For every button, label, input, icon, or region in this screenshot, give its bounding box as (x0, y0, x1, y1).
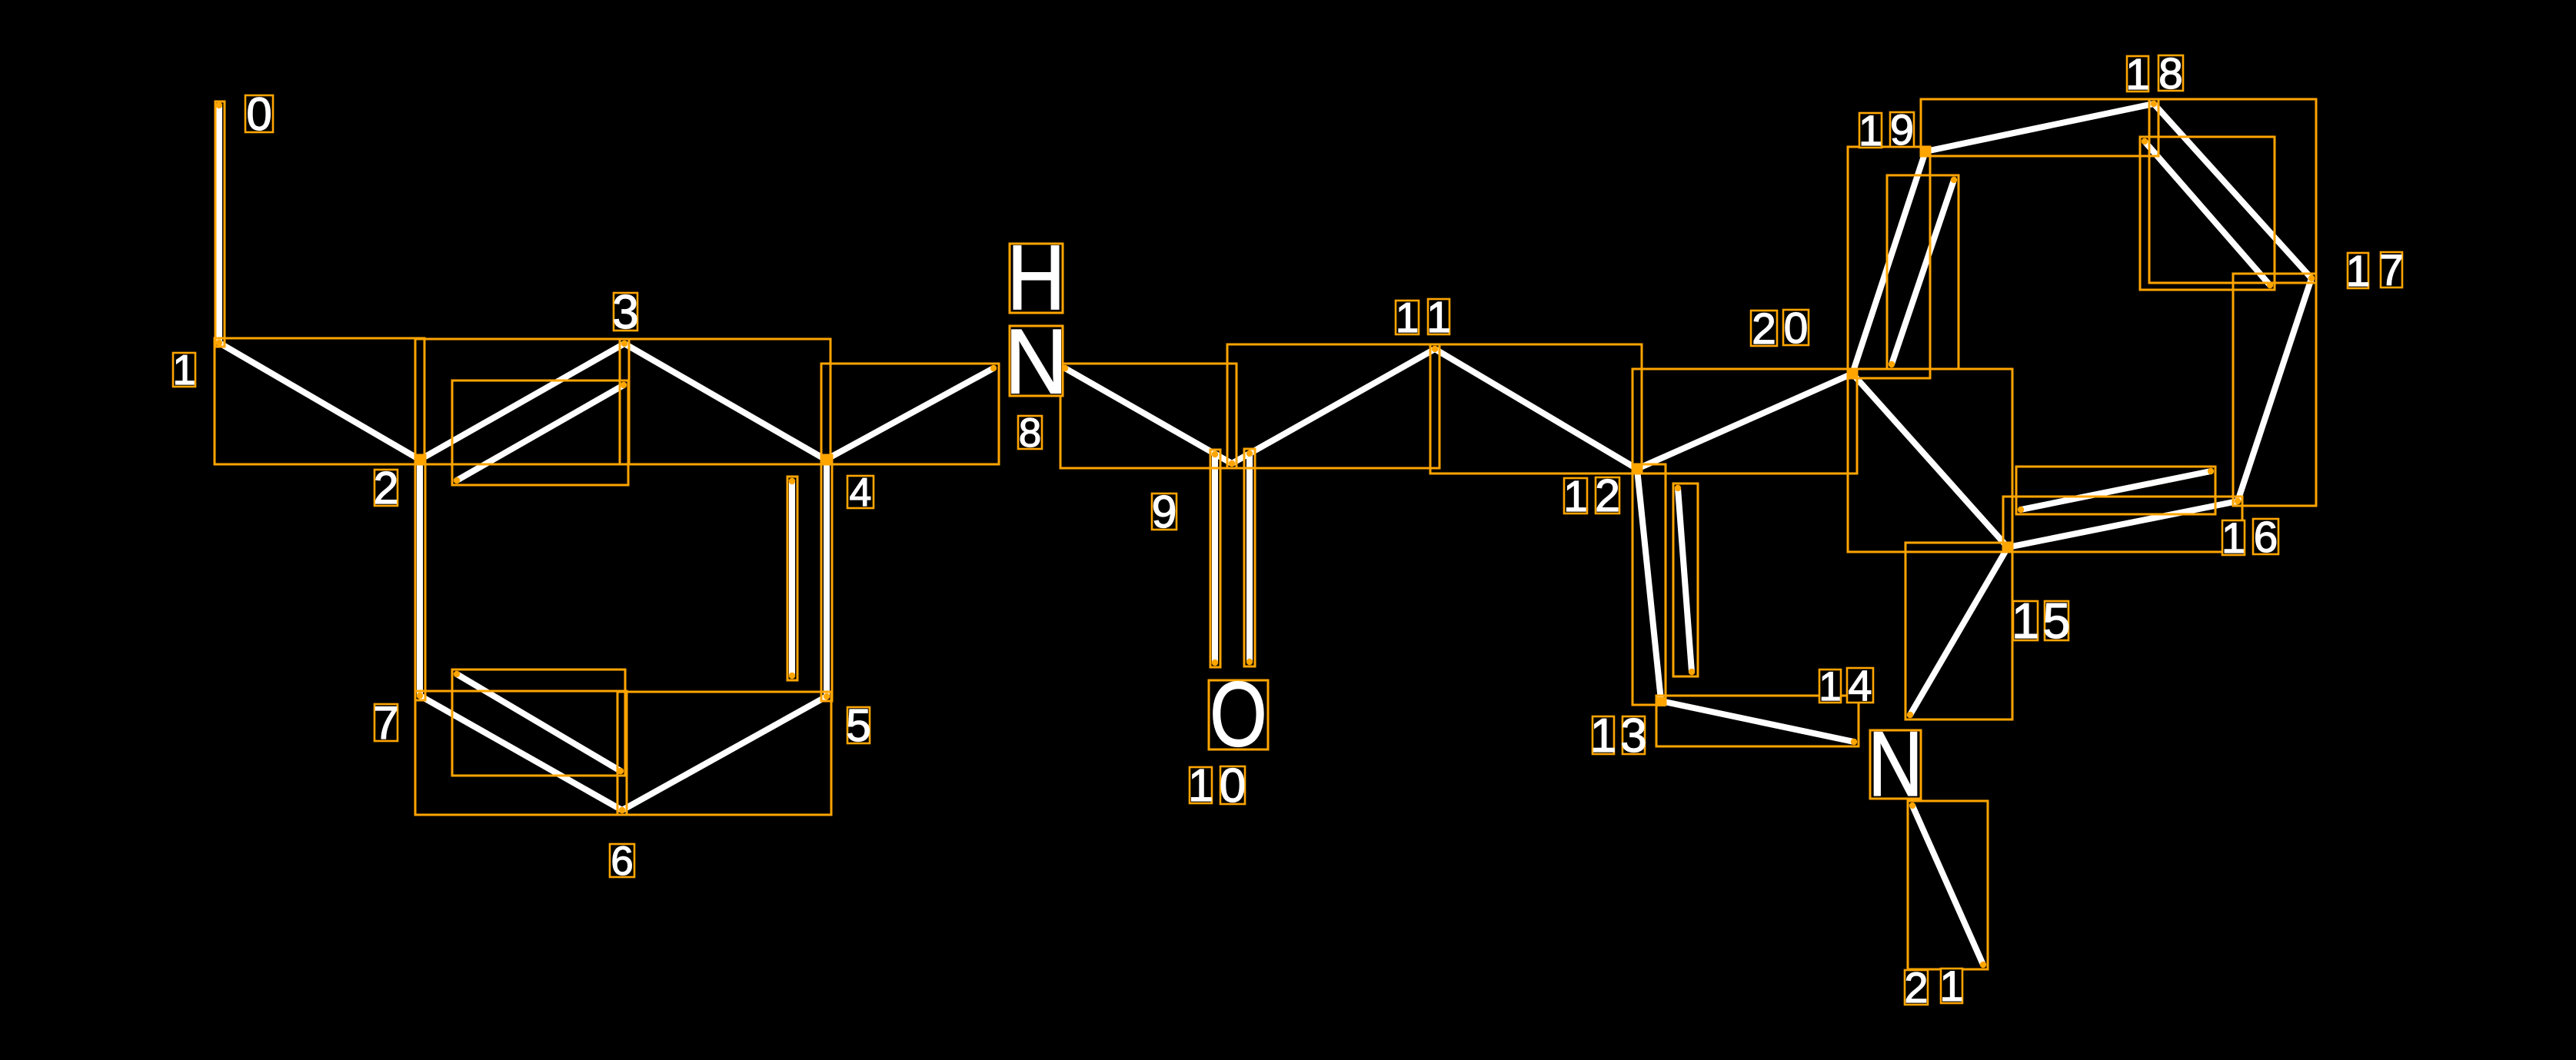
svg-text:1: 1 (1939, 962, 1963, 1010)
svg-text:1: 1 (2346, 247, 2371, 296)
svg-text:N: N (1004, 310, 1067, 413)
svg-text:2: 2 (1904, 963, 1928, 1012)
svg-text:1: 1 (1819, 664, 1841, 709)
svg-text:0: 0 (1220, 759, 1246, 812)
svg-text:2: 2 (1752, 304, 1776, 354)
svg-text:7: 7 (2379, 246, 2404, 295)
svg-text:1: 1 (1590, 709, 1616, 763)
svg-text:5: 5 (2042, 593, 2070, 649)
svg-text:8: 8 (1019, 410, 1041, 456)
svg-text:1: 1 (172, 346, 196, 394)
svg-text:O: O (1210, 663, 1267, 766)
svg-text:3: 3 (612, 286, 638, 339)
svg-text:2: 2 (1595, 470, 1620, 521)
svg-text:N: N (1868, 713, 1923, 816)
svg-text:1: 1 (1859, 106, 1882, 155)
svg-text:4: 4 (1848, 661, 1872, 709)
svg-text:9: 9 (1152, 487, 1177, 537)
svg-text:9: 9 (1890, 105, 1914, 154)
svg-text:6: 6 (2254, 513, 2278, 562)
svg-text:1: 1 (2222, 513, 2245, 562)
svg-text:6: 6 (611, 839, 633, 884)
svg-text:0: 0 (1784, 304, 1809, 353)
svg-text:3: 3 (1620, 709, 1646, 763)
svg-text:7: 7 (373, 697, 398, 749)
svg-text:1: 1 (2012, 593, 2039, 649)
svg-text:1: 1 (2125, 50, 2150, 99)
svg-text:4: 4 (850, 470, 872, 515)
svg-text:8: 8 (2158, 49, 2183, 98)
svg-text:0: 0 (246, 88, 271, 140)
svg-text:1: 1 (1396, 294, 1419, 341)
svg-text:1: 1 (1563, 472, 1588, 521)
svg-text:1: 1 (1426, 293, 1451, 342)
svg-text:1: 1 (1188, 760, 1213, 811)
svg-text:5: 5 (846, 700, 871, 751)
svg-text:2: 2 (374, 463, 399, 513)
